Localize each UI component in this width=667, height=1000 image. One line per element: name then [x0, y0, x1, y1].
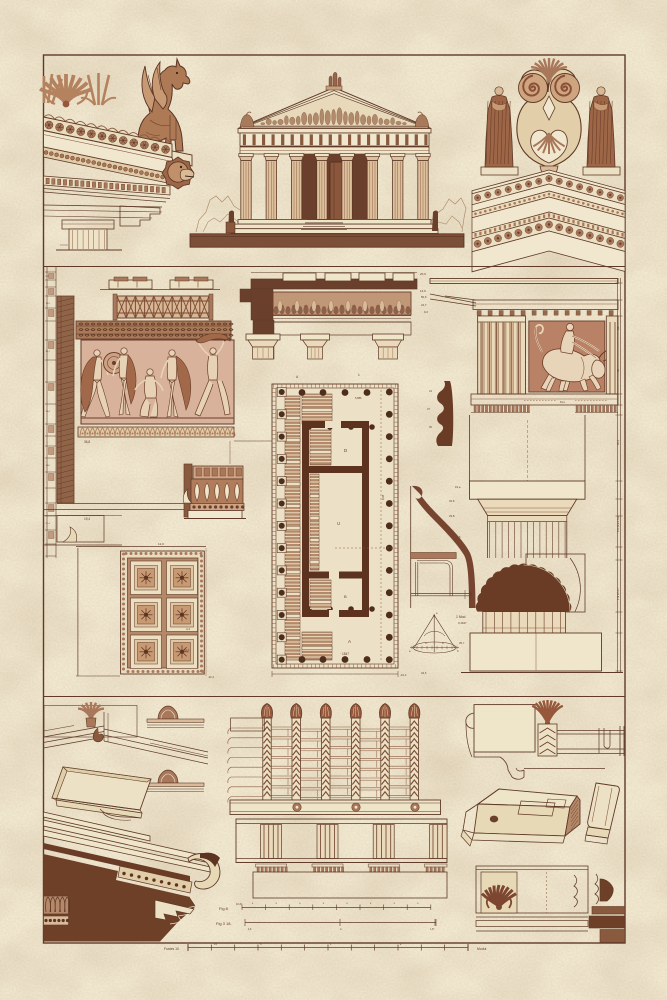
svg-text:33,8: 33,8 — [449, 514, 455, 518]
svg-text:-31,4: -31,4 — [400, 673, 407, 677]
svg-text:Fustes 10: Fustes 10 — [164, 947, 179, 951]
svg-text:1 Mod.: 1 Mod. — [456, 615, 466, 619]
svg-text:4,4: 4,4 — [186, 627, 190, 631]
svg-text:8,08: 8,08 — [381, 494, 385, 500]
svg-text:40 20: 40 20 — [236, 903, 243, 906]
svg-text:35,7: 35,7 — [459, 641, 465, 645]
svg-text:34,6: 34,6 — [421, 671, 427, 675]
svg-text:0,4947: 0,4947 — [458, 621, 467, 625]
svg-text:Fig 3 18.: Fig 3 18. — [216, 921, 232, 926]
svg-text:19,4: 19,4 — [84, 517, 90, 521]
svg-text:9,2: 9,2 — [616, 326, 620, 330]
svg-text:14,6: 14,6 — [420, 289, 426, 293]
svg-text:12,0: 12,0 — [158, 542, 164, 546]
svg-text:5,886: 5,886 — [355, 396, 362, 400]
svg-text:19,a: 19,a — [455, 485, 461, 489]
svg-text:1,5⁰: 1,5⁰ — [430, 928, 434, 931]
svg-text:20,9: 20,9 — [420, 272, 426, 276]
svg-text:56,6: 56,6 — [421, 295, 427, 299]
svg-text:Fig 8: Fig 8 — [219, 906, 229, 911]
svg-text:Modul: Modul — [477, 947, 486, 951]
svg-text:B: B — [344, 594, 347, 599]
svg-text:36,8: 36,8 — [84, 440, 90, 444]
svg-text:2 M 19 a F: 2 M 19 a F — [617, 588, 620, 600]
svg-text:9,2: 9,2 — [424, 310, 428, 314]
svg-text:· 1847: · 1847 — [340, 652, 349, 656]
svg-text:-31,4: -31,4 — [208, 675, 214, 679]
svg-text:M,s: M,s — [560, 400, 565, 404]
svg-text:A: A — [348, 639, 351, 644]
svg-text:24,7: 24,7 — [421, 303, 427, 307]
svg-text:34,6: 34,6 — [449, 499, 455, 503]
svg-text:6 B 10,a 1 9,a: 6 B 10,a 1 9,a — [617, 516, 620, 532]
svg-text:45,1: 45,1 — [616, 439, 620, 445]
svg-text:10,4: 10,4 — [184, 648, 190, 652]
